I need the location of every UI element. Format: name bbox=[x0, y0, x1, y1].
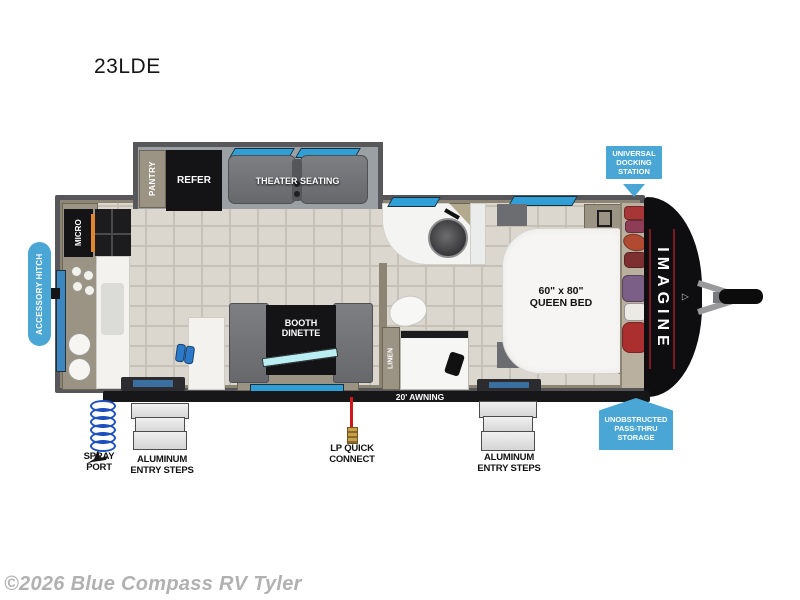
refer-label: REFER bbox=[177, 175, 211, 186]
cupholder-icon bbox=[294, 191, 300, 197]
bath-divider bbox=[470, 203, 486, 265]
label-entry-steps-right: ALUMINUMENTRY STEPS bbox=[472, 453, 546, 474]
bath-window-icon bbox=[387, 197, 441, 207]
lp-connector-icon bbox=[347, 427, 358, 444]
dish-icon bbox=[71, 266, 82, 277]
gear-icon bbox=[624, 206, 646, 220]
pantry-label: PANTRY bbox=[140, 151, 165, 207]
shower-fixture-icon bbox=[444, 351, 465, 377]
watermark: ©2026 Blue Compass RV Tyler bbox=[4, 573, 302, 596]
tv-bracket-icon bbox=[597, 210, 612, 227]
pantry-cabinet: PANTRY bbox=[139, 150, 166, 208]
bath-sink-icon bbox=[428, 218, 468, 258]
linen-label: LINEN bbox=[383, 328, 399, 389]
theater-label: THEATER SEATING bbox=[225, 176, 370, 186]
table-edge-highlight bbox=[262, 348, 339, 367]
callout-arrow-icon bbox=[623, 184, 645, 197]
gear-icon bbox=[625, 220, 646, 233]
kitchen-counter bbox=[96, 256, 130, 389]
callout-universal-docking-station: UNIVERSALDOCKINGSTATION bbox=[606, 146, 662, 179]
entry-steps-right-graphic bbox=[479, 400, 537, 454]
callout-accessory-hitch: ACCESSORY HITCH bbox=[28, 242, 51, 346]
counter-sink-inset bbox=[101, 283, 124, 335]
dinette-bench-right bbox=[333, 303, 373, 383]
dinette-table: BOOTHDINETTE bbox=[266, 305, 336, 375]
dish-icon bbox=[84, 285, 95, 296]
trailer-tongue bbox=[695, 275, 767, 320]
label-entry-steps-left: ALUMINUMENTRY STEPS bbox=[125, 455, 199, 476]
kitchen-window-icon bbox=[56, 270, 66, 372]
bed-corner-cabinet bbox=[497, 204, 527, 226]
dinette-bench-left bbox=[229, 303, 269, 383]
micro-label: MICRO bbox=[64, 209, 93, 257]
stove-cooktop bbox=[95, 209, 131, 256]
queen-bed: 60" x 80"QUEEN BED bbox=[502, 228, 622, 374]
dish-icon bbox=[72, 281, 83, 292]
microwave: MICRO bbox=[64, 209, 93, 257]
label-spray-port: SPRAYPORT bbox=[72, 452, 126, 473]
imagine-logo: IMAGINE bbox=[649, 229, 675, 369]
awning-bar bbox=[103, 391, 650, 402]
page-title: 23LDE bbox=[94, 55, 161, 79]
sink-bowl-icon bbox=[68, 358, 91, 381]
callout-pass-thru-storage: UNOBSTRUCTEDPASS-THRUSTORAGE bbox=[599, 398, 673, 450]
linen-cabinet: LINEN bbox=[382, 327, 400, 390]
label-lp-quick-connect: LP QUICKCONNECT bbox=[320, 444, 384, 465]
awning-label: 20' AWNING bbox=[385, 392, 455, 402]
grand-design-mark-icon: △ bbox=[678, 289, 694, 305]
floorplan-image: 23LDE ©2026 Blue Compass RV Tyler PANTRY… bbox=[0, 0, 800, 600]
shower bbox=[400, 330, 469, 390]
dinette-label: BOOTHDINETTE bbox=[266, 318, 336, 338]
entry-mat bbox=[121, 377, 185, 391]
dish-icon bbox=[83, 270, 94, 281]
sink-bowl-icon bbox=[68, 333, 91, 356]
lp-connect-line bbox=[350, 397, 353, 428]
entry-steps-left-graphic bbox=[131, 402, 189, 452]
bed-label: 60" x 80"QUEEN BED bbox=[511, 285, 611, 309]
refrigerator: REFER bbox=[166, 150, 222, 211]
